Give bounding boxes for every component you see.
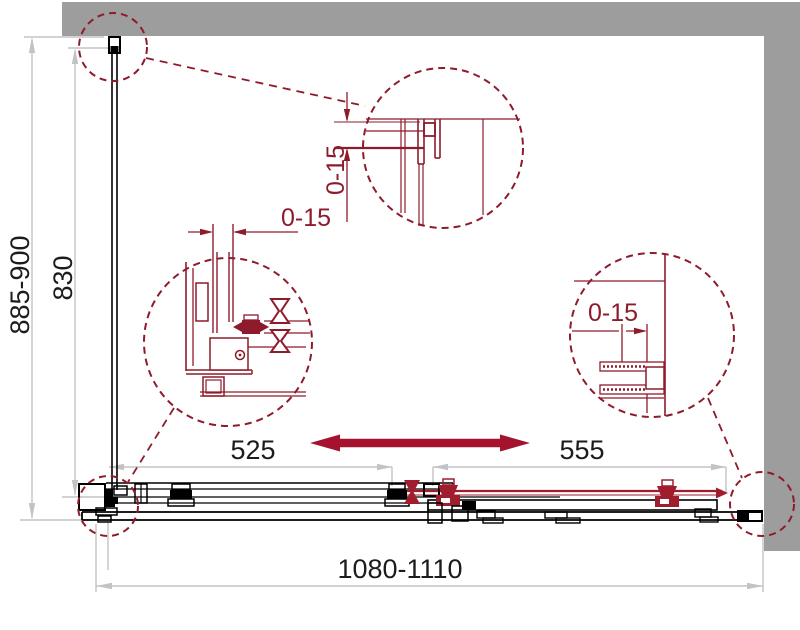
walls <box>62 2 800 551</box>
leader-top <box>146 58 365 106</box>
roller-axle-detail <box>242 320 260 334</box>
top-wall <box>62 2 800 36</box>
shower-enclosure-drawing: 885-900 830 525 555 1080-1110 <box>0 0 800 630</box>
dimensions <box>20 37 763 592</box>
bowtie-roller-detail-bottom <box>271 330 289 352</box>
overall-width-label: 1080-1110 <box>337 554 462 584</box>
technical-drawing-page: 885-900 830 525 555 1080-1110 <box>0 0 800 630</box>
bowtie-roller-detail-top <box>271 299 289 323</box>
magnet-strip-detail <box>646 367 664 389</box>
glass-panel <box>109 37 120 490</box>
carriage-body-detail <box>210 338 248 370</box>
left-panel-width-label: 525 <box>230 435 275 465</box>
right-panel-width-label: 555 <box>559 435 604 465</box>
detail-right-content: 0-15 <box>572 254 665 416</box>
adjust-top-label: 0-15 <box>322 145 350 195</box>
rail-clip-2 <box>545 512 580 523</box>
adjust-left-label: 0-15 <box>281 204 331 232</box>
adjust-right-label: 0-15 <box>588 299 638 327</box>
right-wall <box>764 2 800 551</box>
glass-height-label: 830 <box>48 255 78 300</box>
detail-top-content: 0-15 <box>322 92 520 226</box>
track-hardware <box>79 479 718 523</box>
slide-direction-arrow <box>310 435 530 452</box>
roller-red-right <box>655 480 679 507</box>
detail-left-content: 0-15 <box>186 204 331 396</box>
height-range-label: 885-900 <box>5 235 35 334</box>
leader-bottom-left <box>128 408 174 482</box>
